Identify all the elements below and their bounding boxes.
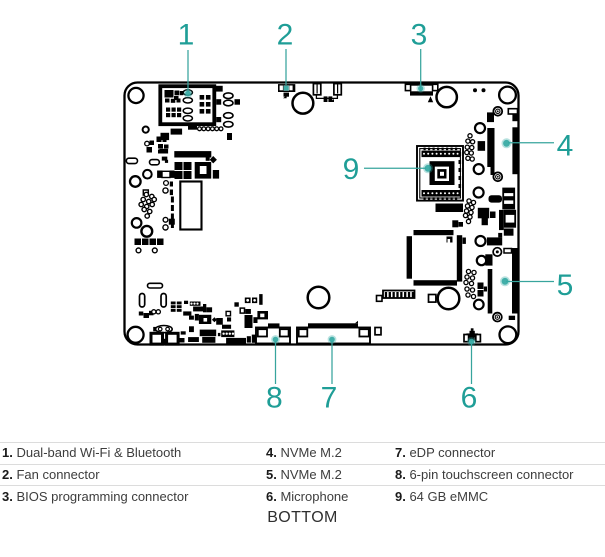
svg-text:4: 4	[557, 130, 574, 163]
svg-text:2: 2	[277, 19, 294, 52]
svg-text:1: 1	[178, 19, 195, 52]
svg-text:6: 6	[461, 382, 478, 415]
svg-text:3: 3	[411, 19, 428, 52]
svg-text:8: 8	[266, 382, 283, 415]
svg-text:5: 5	[557, 269, 574, 302]
svg-text:9: 9	[343, 153, 360, 186]
svg-text:7: 7	[321, 382, 338, 415]
